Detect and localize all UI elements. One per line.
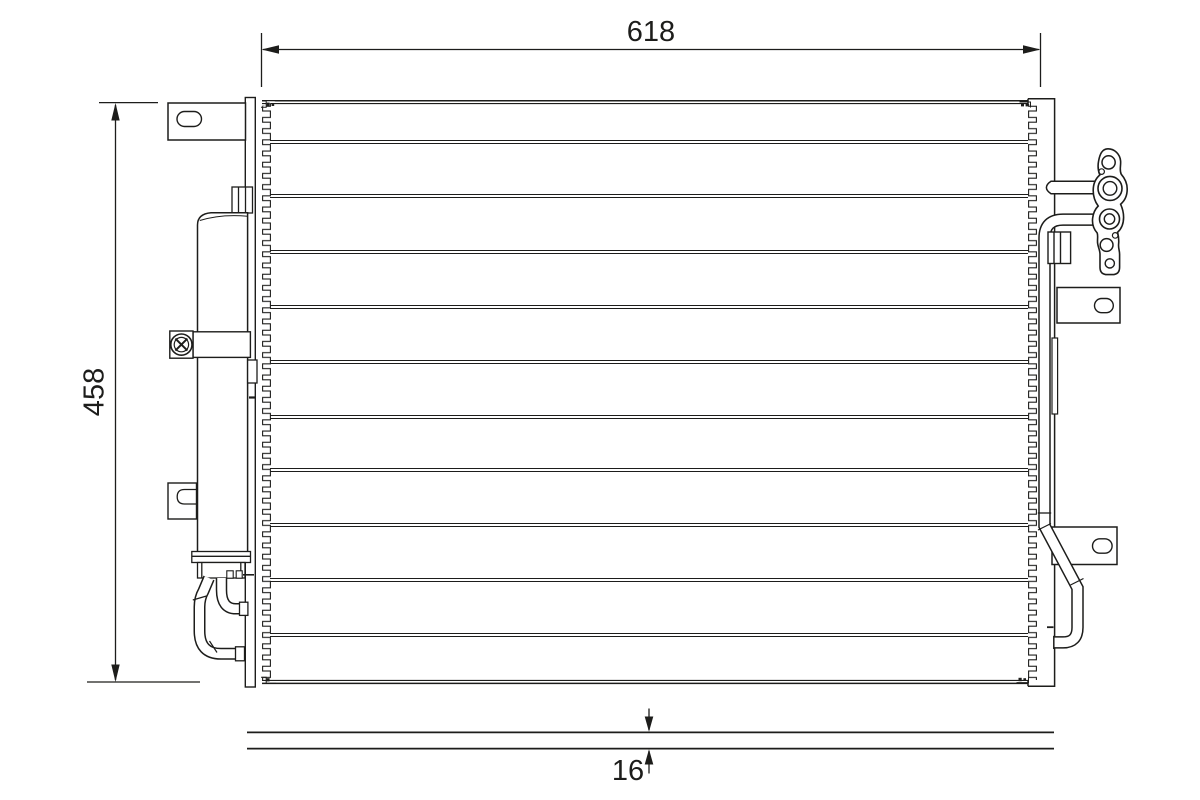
tank-strip <box>1052 338 1058 414</box>
condenser-technical-drawing: 618 458 16 <box>0 0 1200 800</box>
outlet-pipe <box>1038 220 1095 649</box>
thickness-dimension-text: 16 <box>612 755 644 787</box>
corner-clinch-marks <box>261 101 1031 684</box>
dimension-height: 458 <box>79 103 201 682</box>
mounting-bracket-lower-left <box>168 483 197 519</box>
mounting-bracket-top-left <box>168 103 246 140</box>
receiver-drier-assembly <box>168 103 257 661</box>
drier-clamp <box>170 331 251 358</box>
arrowhead-right <box>1023 45 1041 53</box>
fin-edge-left <box>262 104 271 680</box>
drier-pipes <box>193 578 248 661</box>
drawing-page: 618 458 16 <box>0 0 1200 800</box>
condenser-core <box>245 98 1054 688</box>
refrigerant-connection-block <box>1092 149 1127 275</box>
arrowhead-top <box>111 103 119 121</box>
core-tube-rows <box>270 141 1028 637</box>
side-plate-tab <box>248 360 257 383</box>
mounting-bracket-upper-right <box>1057 288 1120 324</box>
fin-edge-right <box>1028 104 1037 680</box>
clamp-screw <box>171 334 192 355</box>
inlet-stub-pipe <box>1046 181 1097 194</box>
drier-top-connector <box>232 187 253 213</box>
dimension-width: 618 <box>262 16 1041 87</box>
arrowhead-bottom <box>111 665 119 683</box>
arrowhead-left <box>262 45 280 53</box>
right-side-assembly <box>1038 149 1127 649</box>
width-dimension-text: 618 <box>627 16 675 48</box>
connection-block-outline <box>1092 149 1127 275</box>
side-profile-view <box>247 732 1054 748</box>
pipe-sleeve-block <box>1048 232 1071 264</box>
drier-cylinder <box>198 213 248 553</box>
drier-bottom-cap <box>192 552 254 579</box>
arrowhead-down <box>645 717 654 732</box>
arrowhead-up <box>645 749 654 764</box>
height-dimension-text: 458 <box>79 368 111 416</box>
